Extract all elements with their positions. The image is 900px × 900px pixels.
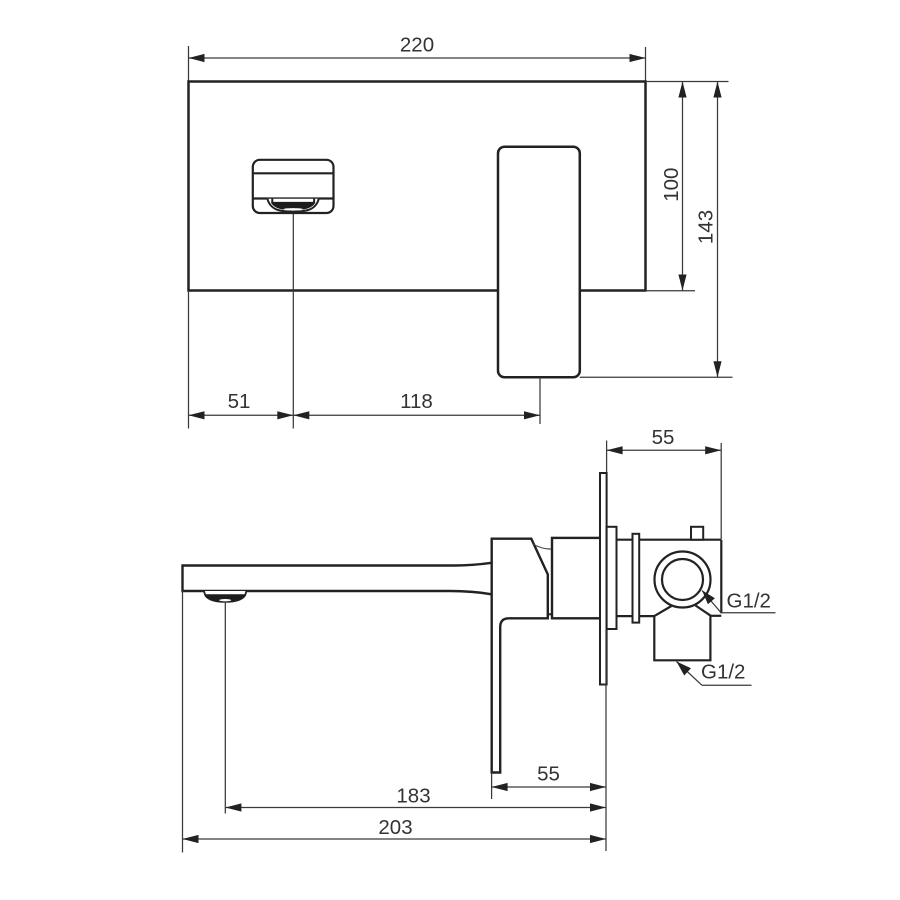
svg-text:203: 203 xyxy=(378,816,412,839)
svg-text:143: 143 xyxy=(694,210,717,244)
svg-text:183: 183 xyxy=(396,785,430,808)
svg-text:G1/2: G1/2 xyxy=(727,590,771,613)
svg-text:55: 55 xyxy=(537,763,560,786)
svg-text:220: 220 xyxy=(400,34,434,57)
svg-text:55: 55 xyxy=(652,426,675,449)
svg-text:51: 51 xyxy=(228,390,251,413)
svg-text:118: 118 xyxy=(400,390,433,413)
svg-text:G1/2: G1/2 xyxy=(701,661,745,684)
svg-text:100: 100 xyxy=(660,168,683,202)
